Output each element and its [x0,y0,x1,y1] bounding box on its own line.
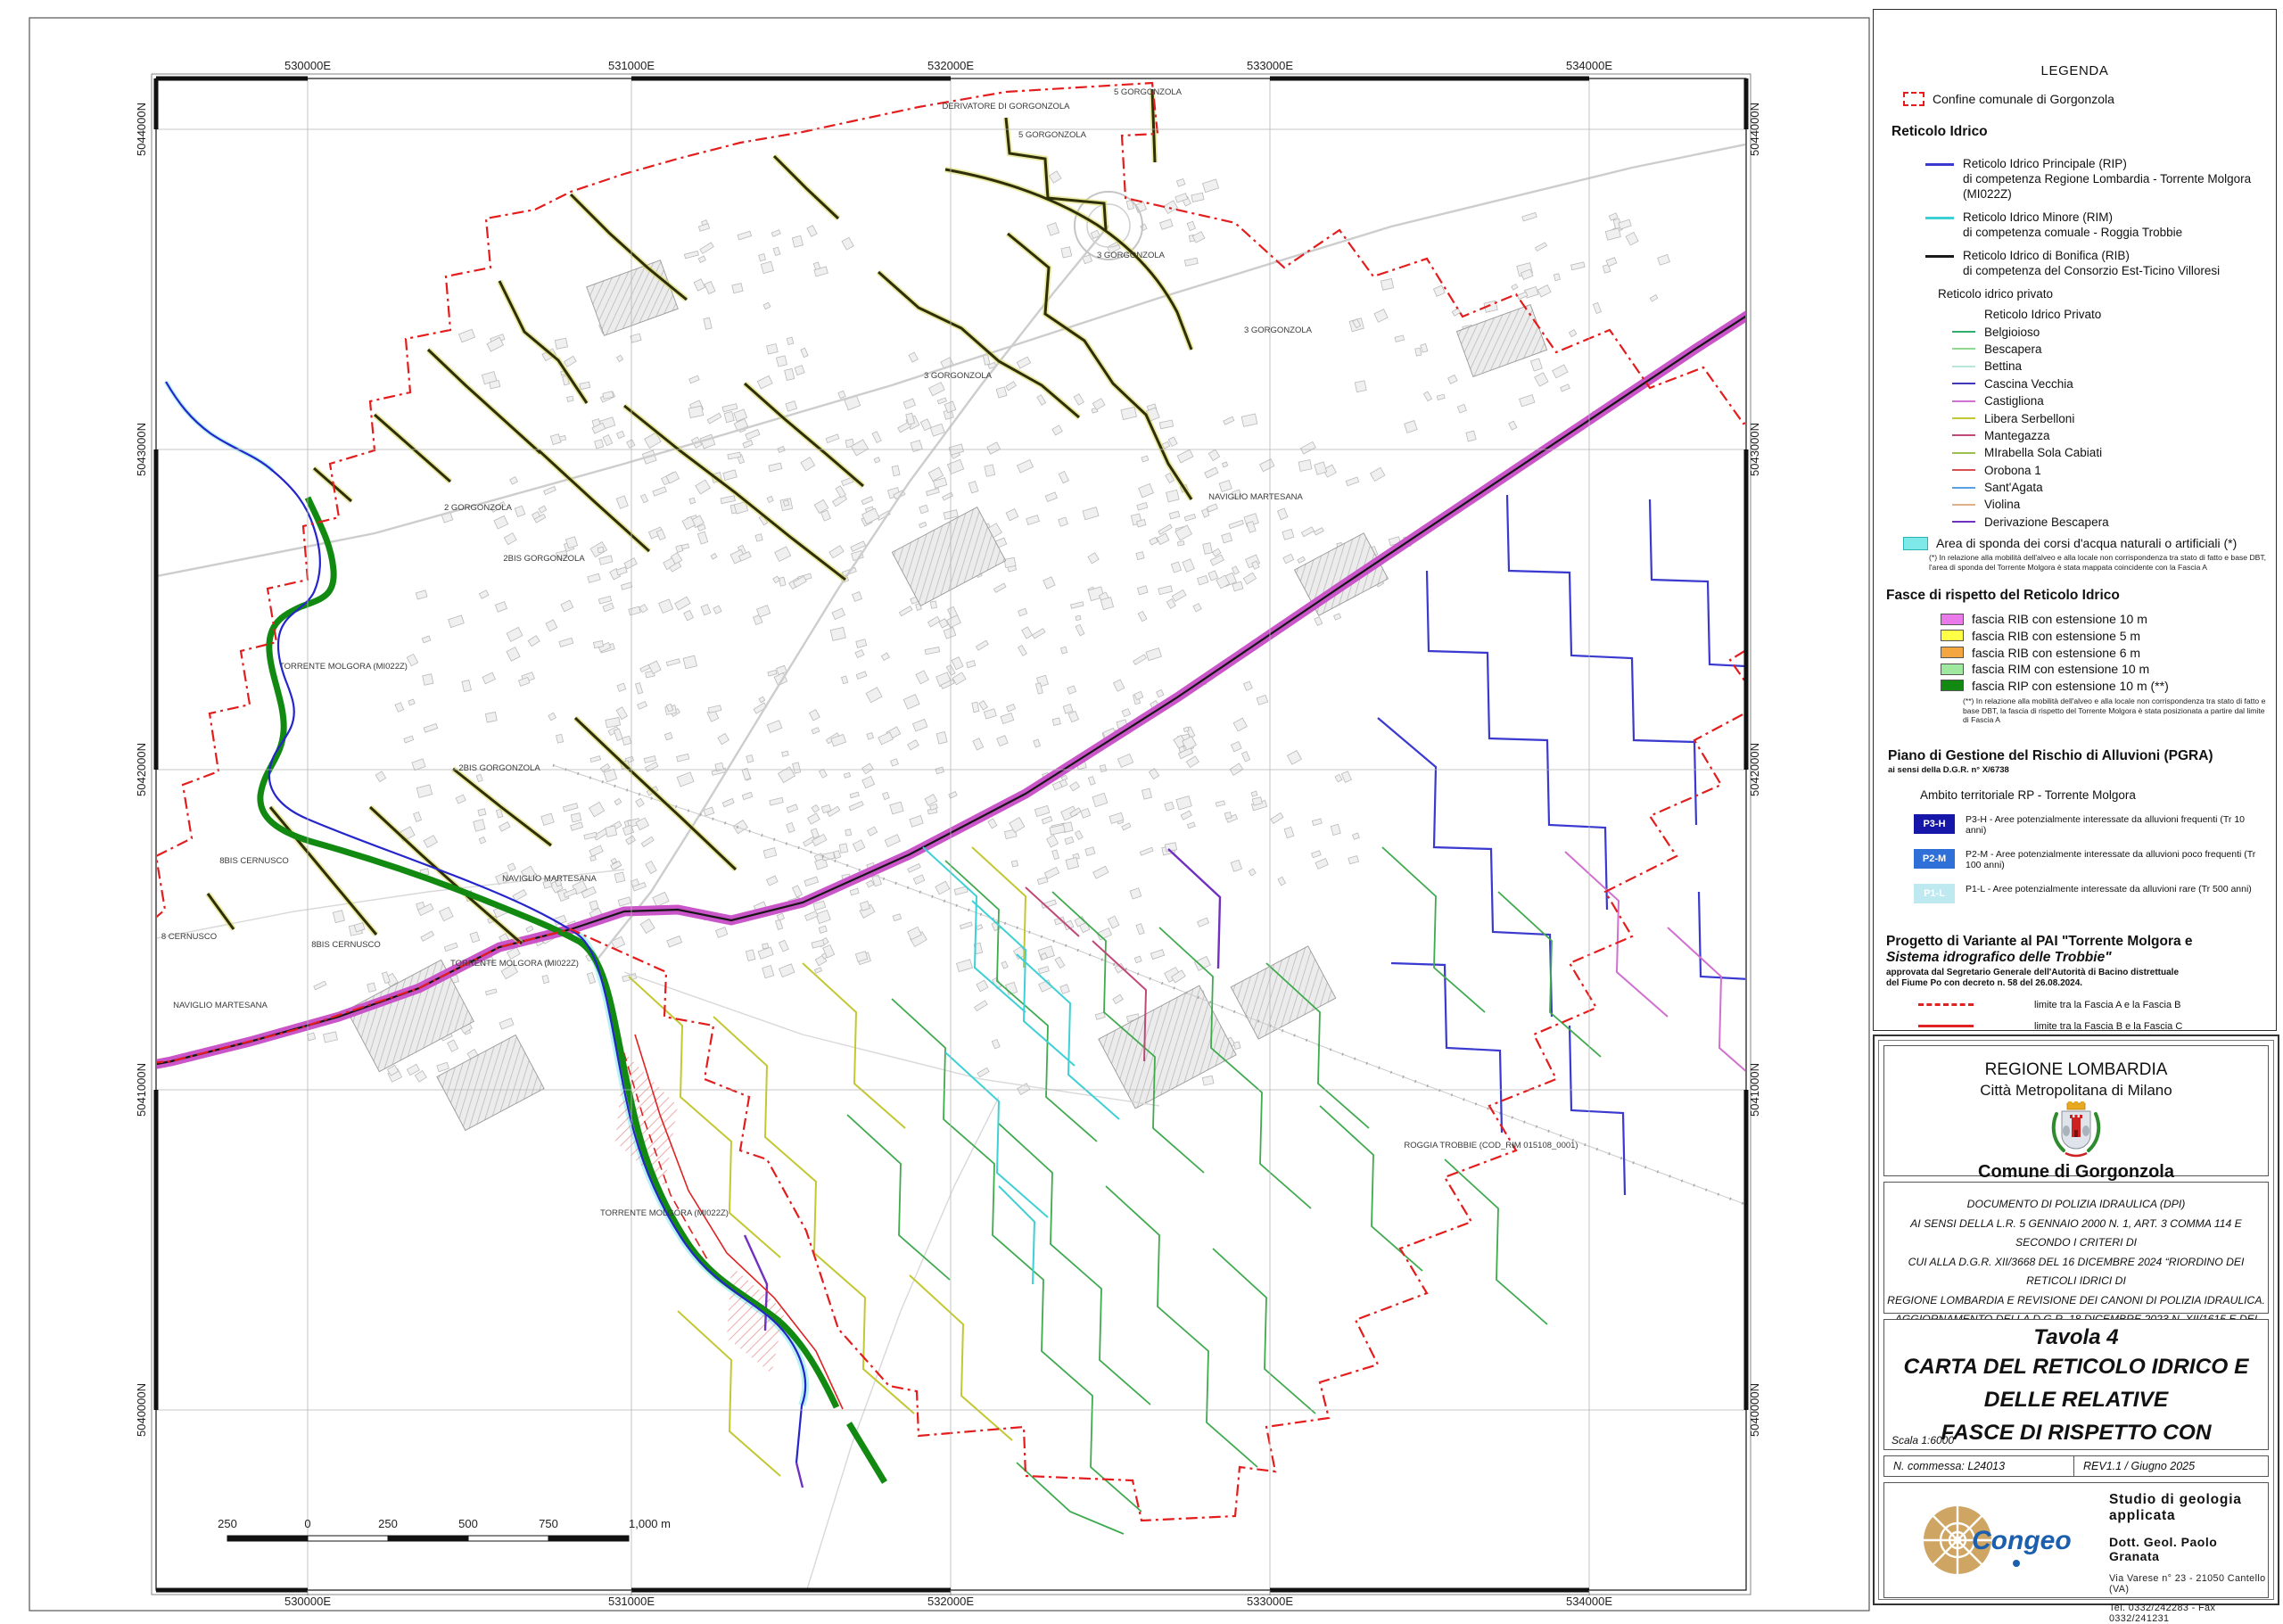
line-swatch-icon [1925,217,1954,219]
line-swatch-icon [1952,504,1975,506]
tavola-label: Tavola 4 [1884,1325,2268,1350]
pgra-items: P3-HP3-H - Aree potenzialmente interessa… [1874,814,2276,903]
svg-text:0: 0 [304,1517,310,1530]
line-swatch-icon [1952,348,1975,350]
castigliona-channels [1565,852,1770,1092]
fascia-swatch-icon [1941,630,1964,641]
pgra-item-label: P2-M - Aree potenzialmente interessate d… [1966,849,2260,871]
document-line: AI SENSI DELLA L.R. 5 GENNAIO 2000 N. 1,… [1884,1215,2268,1253]
svg-text:533000E: 533000E [1247,1595,1293,1608]
line-swatch-icon [1952,383,1975,384]
svg-text:250: 250 [218,1517,237,1530]
sponda-label: Area di sponda dei corsi d'acqua natural… [1936,536,2237,550]
svg-text:2BIS GORGONZOLA: 2BIS GORGONZOLA [458,763,540,773]
fascia-swatch-icon [1941,614,1964,625]
svg-text:5042000N: 5042000N [135,743,148,796]
svg-text:ROGGIA TROBBIE (COD_RIM 015108: ROGGIA TROBBIE (COD_RIM 015108_0001) [1404,1141,1578,1150]
svg-text:TORRENTE MOLGORA (MI022Z): TORRENTE MOLGORA (MI022Z) [450,959,579,969]
fascia-item: fascia RIM con estensione 10 m [1941,661,2276,678]
svg-text:5044000N: 5044000N [1748,103,1761,156]
private-item: Reticolo Idrico Privato [1952,306,2276,323]
private-item: Mantegazza [1952,427,2276,444]
sponda-note: (*) In relazione alla mobilità dell'alve… [1929,553,2267,572]
svg-text:750: 750 [539,1517,558,1530]
fascia-swatch-icon [1941,647,1964,658]
private-item-label: Reticolo Idrico Privato [1984,308,2101,321]
pgra-ambito: Ambito territoriale RP - Torrente Molgor… [1920,788,2276,802]
se-green-channels [847,847,1821,1534]
svg-text:3 GORGONZOLA: 3 GORGONZOLA [1244,326,1313,335]
reticolo-item: Reticolo Idrico Minore (RIM)di competenz… [1925,210,2276,240]
comune-label: Comune di Gorgonzola [1884,1162,2268,1183]
studio-text: Studio di geologia applicata Dott. Geol.… [2109,1492,2268,1624]
fascia-item-label: fascia RIB con estensione 6 m [1972,646,2140,660]
pgra-item: P3-HP3-H - Aree potenzialmente interessa… [1914,814,2276,837]
private-header: Reticolo idrico privato [1938,287,2276,301]
private-item-label: Bescapera [1984,342,2042,356]
map-title-line: CARTA DEL RETICOLO IDRICO E DELLE RELATI… [1884,1350,2268,1416]
fascia-item: fascia RIB con estensione 5 m [1941,628,2276,645]
private-item-label: Belgioioso [1984,326,2040,339]
pai-solid-icon [1918,1025,1974,1027]
congeo-logo-icon: Congeo [1911,1494,2098,1587]
svg-text:Congeo: Congeo [1972,1526,2072,1555]
line-swatch-icon [1952,400,1975,402]
svg-text:5041000N: 5041000N [1748,1063,1761,1117]
line-swatch-icon [1952,331,1975,333]
private-item: Violina [1952,496,2276,513]
legend-title: LEGENDA [1874,63,2276,78]
pgra-item-label: P3-H - Aree potenzialmente interessate d… [1966,814,2260,837]
pgra-chip: P2-M [1914,849,1955,869]
pgra-chip: P1-L [1914,884,1955,903]
svg-text:2 GORGONZOLA: 2 GORGONZOLA [444,503,513,513]
private-item-label: Derivazione Bescapera [1984,515,2109,529]
pai-item-label: limite tra la Fascia A e la Fascia B [2034,1000,2180,1010]
private-item: Derivazione Bescapera [1952,514,2276,531]
fascia-item: fascia RIP con estensione 10 m (**) [1941,677,2276,694]
pai-header: Progetto di Variante al PAI "Torrente Mo… [1886,934,2276,966]
svg-text:5 GORGONZOLA: 5 GORGONZOLA [1018,130,1087,140]
document-box: DOCUMENTO DI POLIZIA IDRAULICA (DPI)AI S… [1883,1182,2269,1314]
line-swatch-icon [1952,452,1975,454]
reticolo-header: Reticolo Idrico [1892,124,2276,140]
pai-item: limite tra la Fascia B e la Fascia C [1918,1021,2276,1032]
fascia-item-label: fascia RIB con estensione 5 m [1972,629,2140,643]
svg-text:530000E: 530000E [284,59,331,72]
svg-text:NAVIGLIO MARTESANA: NAVIGLIO MARTESANA [173,1001,268,1010]
pgra-chip: P3-H [1914,814,1955,834]
svg-text:NAVIGLIO MARTESANA: NAVIGLIO MARTESANA [1208,492,1303,502]
gorgonzola-coat-of-arms-icon [2048,1101,2104,1158]
private-item-label: Orobona 1 [1984,464,2041,477]
geologist-name: Dott. Geol. Paolo Granata [2109,1535,2268,1563]
svg-text:TORRENTE MOLGORA (MI022Z): TORRENTE MOLGORA (MI022Z) [600,1208,729,1218]
reticolo-main-items: Reticolo Idrico Principale (RIP)di compe… [1925,156,2276,278]
pai-item-label: limite tra la Fascia B e la Fascia C [2034,1021,2182,1032]
line-swatch-icon [1952,366,1975,367]
private-item-label: Sant'Agata [1984,481,2043,494]
fascia-item-label: fascia RIB con estensione 10 m [1972,612,2147,626]
svg-text:5 GORGONZOLA: 5 GORGONZOLA [1114,87,1183,97]
pai-symbol [1918,1025,2034,1027]
studio-box: Congeo Studio di geologia applicata Dott… [1883,1482,2269,1598]
private-item: Orobona 1 [1952,462,2276,479]
torrente-molgora [166,382,805,1463]
reticolo-item-label: Reticolo Idrico di Bonifica (RIB)di comp… [1963,248,2220,278]
fasce-items: fascia RIB con estensione 10 mfascia RIB… [1941,611,2276,694]
private-item: Castigliona [1952,392,2276,409]
private-item: Cascina Vecchia [1952,375,2276,392]
studio-name: Studio di geologia applicata [2109,1492,2268,1524]
svg-text:500: 500 [458,1517,478,1530]
svg-text:534000E: 534000E [1566,1595,1612,1608]
pgra-item: P2-MP2-M - Aree potenzialmente interessa… [1914,849,2276,871]
fasce-header: Fasce di rispetto del Reticolo Idrico [1886,588,2276,604]
pgra-item: P1-LP1-L - Aree potenzialmente interessa… [1914,884,2276,903]
document-line: REGIONE LOMBARDIA E REVISIONE DEI CANONI… [1884,1291,2268,1311]
pai-header-line2: Sistema idrografico delle Trobbie" [1886,950,2112,965]
private-item-label: Cascina Vecchia [1984,377,2073,391]
sponda-swatch-icon [1903,537,1928,550]
reticolo-item: Reticolo Idrico di Bonifica (RIB)di comp… [1925,248,2276,278]
private-items: Reticolo Idrico PrivatoBelgioiosoBescape… [1952,306,2276,531]
pai-sub: approvata dal Segretario Generale dell'A… [1886,968,2276,989]
reticolo-item-label: Reticolo Idrico Minore (RIM)di competenz… [1963,210,2182,240]
svg-text:2BIS GORGONZOLA: 2BIS GORGONZOLA [503,554,585,564]
scale-bar: 25002505007501,000 m [218,1517,671,1541]
title-block: REGIONE LOMBARDIA Città Metropolitana di… [1873,1035,2279,1605]
svg-text:5043000N: 5043000N [1748,423,1761,476]
svg-text:530000E: 530000E [284,1595,331,1608]
confine-label: Confine comunale di Gorgonzola [1933,92,2114,106]
legend-confine-row: Confine comunale di Gorgonzola [1903,92,2276,106]
private-item-label: Bettina [1984,359,2022,373]
line-swatch-icon [1952,487,1975,489]
city-label: Città Metropolitana di Milano [1884,1082,2268,1100]
fascia-item: fascia RIB con estensione 6 m [1941,644,2276,661]
svg-text:8BIS CERNUSCO: 8BIS CERNUSCO [311,940,381,950]
sponda-row: Area di sponda dei corsi d'acqua natural… [1903,536,2276,550]
private-item-label: Libera Serbelloni [1984,412,2074,425]
studio-phone: Tel. 0332/242283 - Fax 0332/241231 [2109,1603,2268,1624]
svg-text:532000E: 532000E [927,59,974,72]
pai-item: limite tra la Fascia A e la Fascia B [1918,1000,2276,1010]
line-swatch-icon [1925,255,1954,258]
map-title-box: Tavola 4 CARTA DEL RETICOLO IDRICO E DEL… [1883,1319,2269,1450]
fasce-note: (**) In relazione alla mobilità dell'alv… [1963,697,2267,725]
svg-text:5040000N: 5040000N [135,1383,148,1437]
svg-text:5042000N: 5042000N [1748,743,1761,796]
fascia-swatch-icon [1941,664,1964,675]
pgra-sub: ai sensi della D.G.R. n° X/6738 [1888,765,2276,775]
svg-text:531000E: 531000E [608,1595,655,1608]
private-item: Bescapera [1952,341,2276,358]
region-label: REGIONE LOMBARDIA [1884,1060,2268,1080]
line-swatch-icon [1952,469,1975,471]
svg-text:534000E: 534000E [1566,59,1612,72]
svg-text:532000E: 532000E [927,1595,974,1608]
pai-dashed-icon [1918,1003,1974,1006]
authority-box: REGIONE LOMBARDIA Città Metropolitana di… [1883,1045,2269,1176]
pai-symbol [1918,1003,2034,1006]
confine-comunale [116,83,1828,1521]
svg-text:5044000N: 5044000N [135,103,148,156]
svg-text:531000E: 531000E [608,59,655,72]
reticolo-item: Reticolo Idrico Principale (RIP)di compe… [1925,156,2276,202]
private-item: MIrabella Sola Cabiati [1952,444,2276,461]
private-item-label: MIrabella Sola Cabiati [1984,446,2102,459]
commessa-row: N. commessa: L24013 REV1.1 / Giugno 2025 [1883,1455,2269,1477]
private-item-label: Mantegazza [1984,429,2050,442]
pgra-header: Piano di Gestione del Rischio di Alluvio… [1888,748,2276,764]
svg-text:5040000N: 5040000N [1748,1383,1761,1437]
document-line: CUI ALLA D.G.R. XII/3668 DEL 16 DICEMBRE… [1884,1253,2268,1291]
scale-label: Scala 1:6000 [1892,1434,1954,1447]
svg-text:3 GORGONZOLA: 3 GORGONZOLA [1097,251,1166,260]
rim-cyan-channels [923,847,1119,1284]
document-line: DOCUMENTO DI POLIZIA IDRAULICA (DPI) [1884,1195,2268,1215]
line-swatch-icon [1952,314,1975,316]
private-item: Belgioioso [1952,323,2276,340]
private-item: Libera Serbelloni [1952,409,2276,426]
legend-panel: LEGENDA Confine comunale di Gorgonzola R… [1873,9,2277,1031]
studio-address: Via Varese n° 23 - 21050 Cantello (VA) [2109,1573,2268,1595]
confine-swatch-icon [1903,92,1924,106]
private-item: Sant'Agata [1952,479,2276,496]
private-item-label: Castigliona [1984,394,2044,408]
svg-text:1,000 m: 1,000 m [629,1517,671,1530]
svg-text:250: 250 [378,1517,398,1530]
revision-label: REV1.1 / Giugno 2025 [2074,1456,2195,1476]
private-item-label: Violina [1984,498,2020,511]
reticolo-item-label: Reticolo Idrico Principale (RIP)di compe… [1963,156,2276,202]
line-swatch-icon [1952,434,1975,436]
fascia-swatch-icon [1941,680,1964,691]
private-item: Bettina [1952,358,2276,375]
svg-text:5043000N: 5043000N [135,423,148,476]
svg-text:NAVIGLIO MARTESANA: NAVIGLIO MARTESANA [502,874,597,884]
svg-text:533000E: 533000E [1247,59,1293,72]
line-swatch-icon [1952,417,1975,419]
svg-text:TORRENTE MOLGORA (MI022Z): TORRENTE MOLGORA (MI022Z) [279,662,408,672]
map-content [116,83,1828,1589]
line-swatch-icon [1925,163,1954,166]
svg-text:3 GORGONZOLA: 3 GORGONZOLA [924,371,993,381]
svg-text:8BIS CERNUSCO: 8BIS CERNUSCO [219,856,289,866]
fascia-item-label: fascia RIP con estensione 10 m (**) [1972,679,2169,693]
line-swatch-icon [1952,521,1975,523]
svg-text:8 CERNUSCO: 8 CERNUSCO [161,932,217,942]
pgra-item-label: P1-L - Aree potenzialmente interessate d… [1966,884,2252,903]
fascia-item-label: fascia RIM con estensione 10 m [1972,662,2149,676]
svg-text:5041000N: 5041000N [135,1063,148,1117]
industrial-blocks [347,260,1547,1131]
sheet-frame [29,18,1869,1611]
fascia-item: fascia RIB con estensione 10 m [1941,611,2276,628]
svg-text:DERIVATORE DI GORGONZOLA: DERIVATORE DI GORGONZOLA [942,102,1070,111]
commessa-label: N. commessa: L24013 [1884,1456,2074,1476]
